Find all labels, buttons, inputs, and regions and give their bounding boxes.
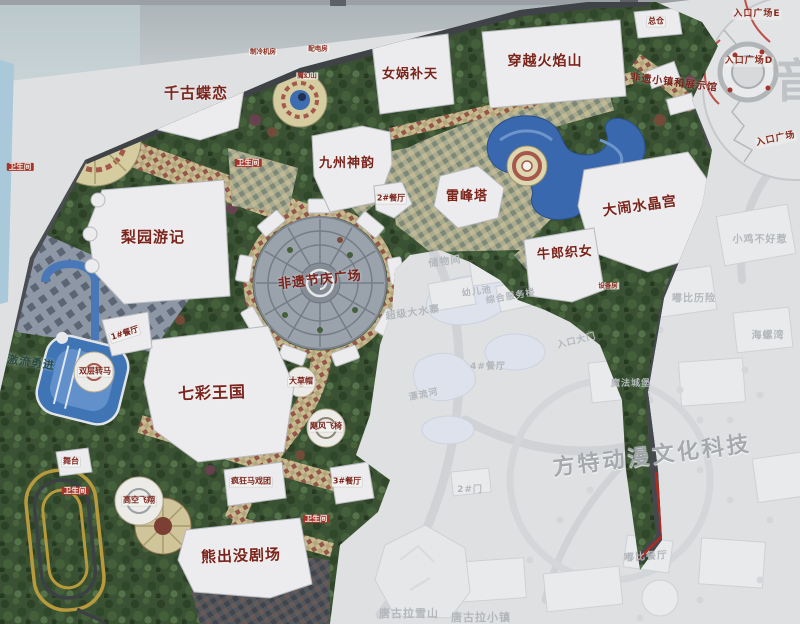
- facility-label: 双层转马: [78, 368, 112, 377]
- faded-phase-label: 小鸡不好惹: [733, 235, 788, 246]
- faded-phase-label: 嘟比餐厅: [624, 550, 669, 564]
- attraction-label: 七彩王国: [178, 383, 247, 403]
- entrance-plaza-label: 入口广场D: [724, 57, 774, 67]
- attraction-label: 梨园游记: [121, 229, 185, 246]
- attraction-label: 女娲补天: [382, 68, 438, 82]
- small-plaque-label: 魔幻山: [296, 72, 318, 79]
- faded-phase-label: 4#餐厅: [470, 363, 506, 373]
- attraction-label: 非遗小镇和展示馆: [630, 72, 719, 94]
- theme-park-map-photo: 千古蝶恋女娲补天穿越火焰山九州神韵雷峰塔大闹水晶宫牛郎织女梨园游记非遗节庆广场七…: [0, 0, 800, 624]
- attraction-label: 牛郎织女: [537, 245, 594, 263]
- faded-phase-label: 魔法城堡: [611, 380, 651, 390]
- faded-phase-label: 海螺湾: [752, 331, 785, 342]
- small-plaque-label: 制冷机房: [249, 48, 277, 55]
- facility-label: 舞台: [62, 458, 80, 467]
- faded-phase-label: 唐古拉雪山: [379, 608, 439, 620]
- attraction-label: 熊出没剧场: [201, 546, 282, 565]
- faded-phase-label: 综合服务楼: [486, 289, 537, 307]
- map-labels-layer: 千古蝶恋女娲补天穿越火焰山九州神韵雷峰塔大闹水晶宫牛郎织女梨园游记非遗节庆广场七…: [0, 0, 800, 624]
- attraction-label: 大闹水晶宫: [602, 194, 678, 220]
- restroom-label: 卫生间: [303, 515, 330, 523]
- attraction-label: 千古蝶恋: [164, 85, 228, 102]
- attraction-label: 激流勇进: [6, 354, 55, 373]
- restroom-label: 卫生间: [7, 163, 34, 171]
- entrance-plaza-label: 入口广场: [754, 131, 797, 149]
- faded-phase-label: 2#门: [457, 486, 483, 496]
- facility-label: 2#餐厅: [376, 195, 406, 204]
- facility-label: 飓风飞椅: [309, 423, 343, 432]
- attraction-label: 九州神韵: [319, 157, 375, 171]
- faded-phase-label: 储物间: [428, 254, 462, 269]
- restroom-label: 卫生间: [62, 487, 89, 495]
- facility-label: 3#餐厅: [332, 478, 362, 487]
- faded-phase-label: 超级大水寨: [385, 304, 441, 323]
- attraction-label: 非遗节庆广场: [277, 269, 362, 292]
- attraction-label: 穿越火焰山: [508, 54, 583, 69]
- small-plaque-label: 设备房: [597, 282, 619, 289]
- facility-label: 大草帽: [288, 378, 314, 387]
- facility-label: 1#餐厅: [109, 325, 141, 343]
- faded-phase-label: 漂流河: [408, 388, 439, 404]
- facility-label: 总仓: [647, 18, 665, 27]
- restroom-label: 卫生间: [235, 159, 262, 167]
- entrance-plaza-label: 入口广场E: [732, 10, 781, 20]
- facility-label: 高空飞翔: [122, 497, 156, 506]
- attraction-label: 雷峰塔: [446, 190, 488, 204]
- small-plaque-label: 配电房: [307, 45, 329, 52]
- facility-label: 疯狂马戏团: [230, 478, 272, 487]
- faded-phase-label: 入口大门: [556, 332, 597, 351]
- edge-clipped-character: 音: [774, 45, 800, 111]
- faded-phase-label: 唐古拉小镇: [451, 612, 511, 624]
- faded-phase-label: 嘟比历险: [672, 294, 716, 305]
